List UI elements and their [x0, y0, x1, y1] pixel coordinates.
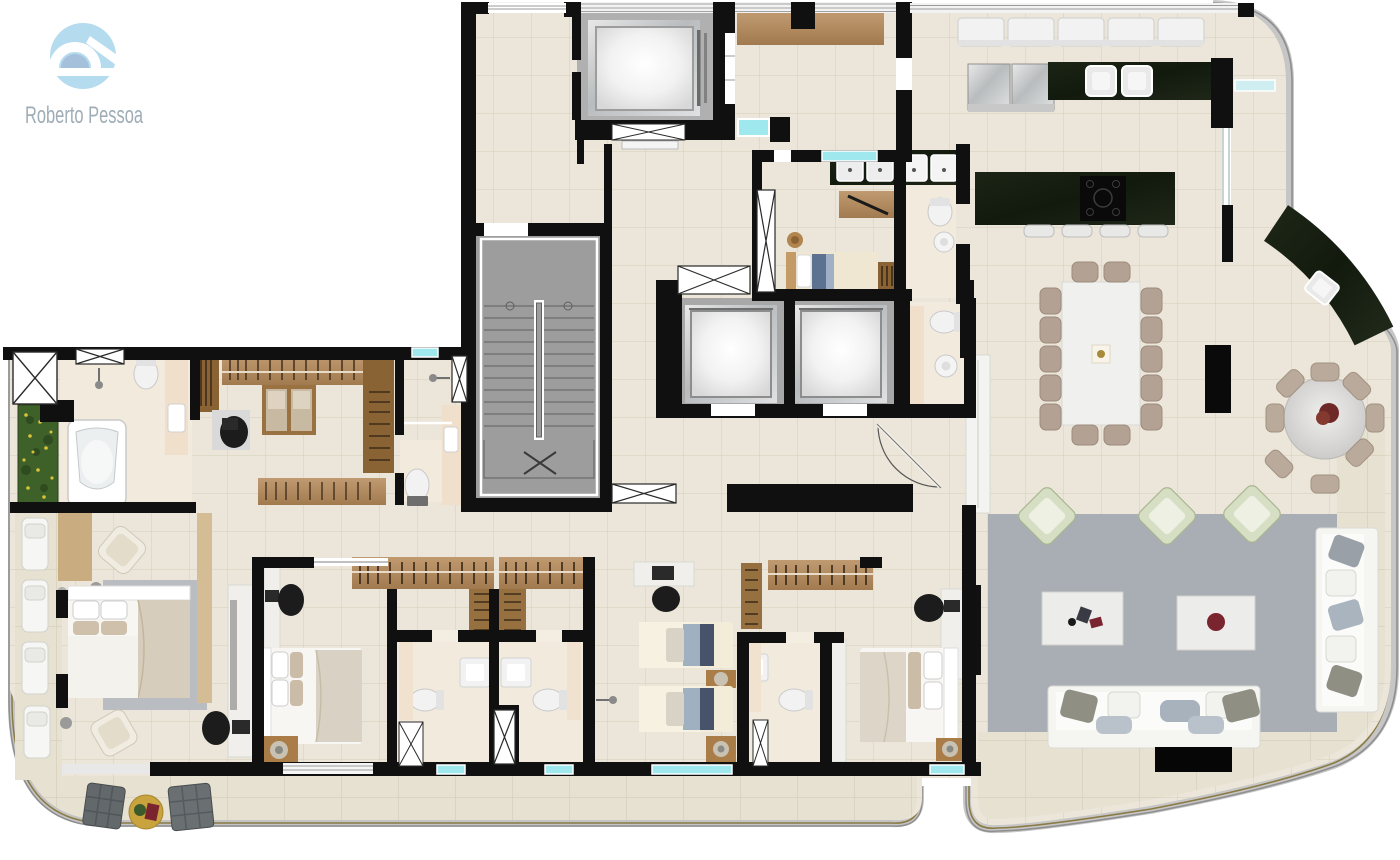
- svg-text:Roberto Pessoa: Roberto Pessoa: [25, 102, 143, 129]
